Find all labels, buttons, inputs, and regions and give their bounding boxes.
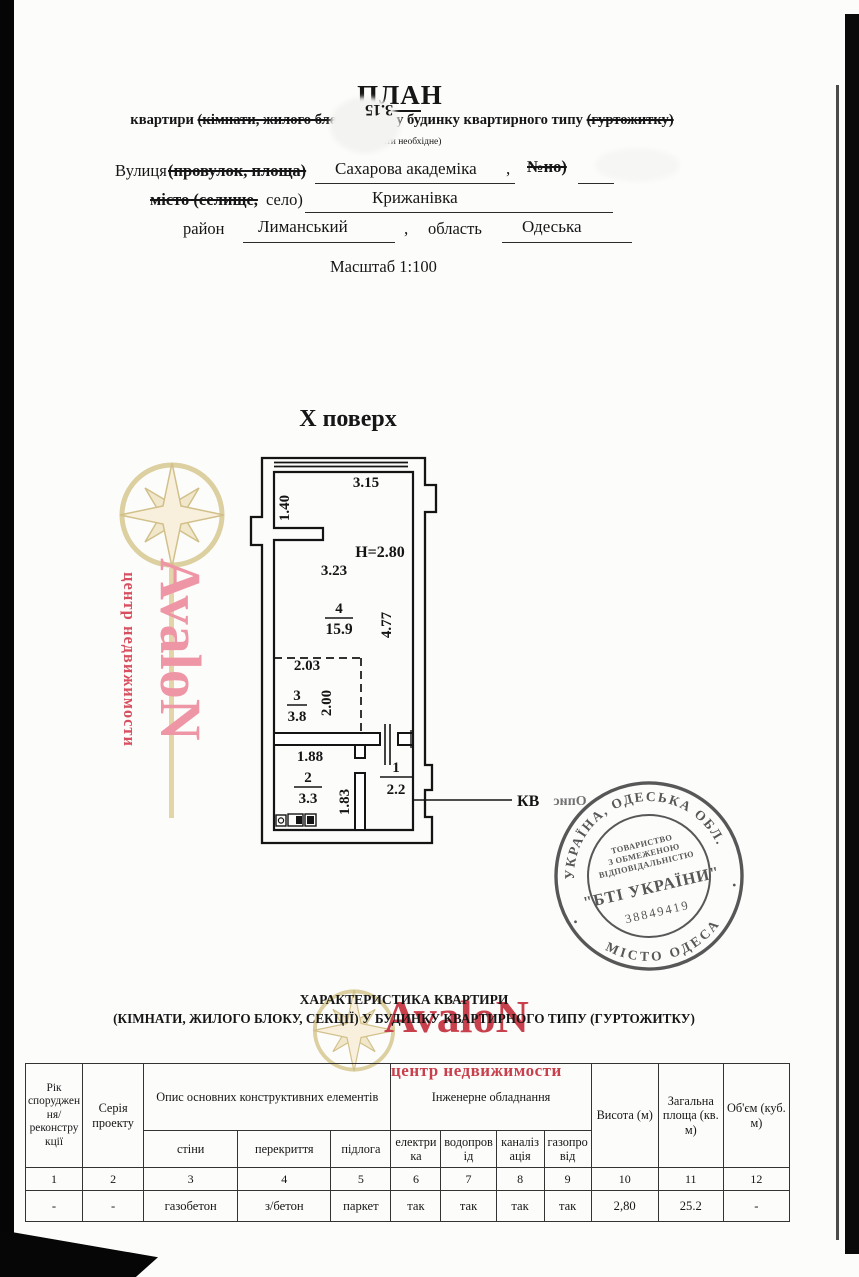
scan-corner-shadow [0, 1230, 158, 1277]
dim-room2-width: 1.88 [297, 749, 323, 765]
value-sewage: так [496, 1191, 544, 1222]
fixture-sink-icon [276, 815, 286, 826]
scan-edge-left [0, 0, 14, 1277]
value-gas: так [544, 1191, 591, 1222]
city-label-struck: місто (селище, [150, 190, 258, 210]
value-slabs: з/бетон [238, 1191, 331, 1222]
col-number: 7 [441, 1168, 496, 1191]
avalon-tagline-watermark: центр недвижимости [119, 572, 139, 817]
room1-number: 1 [392, 760, 400, 776]
col-area-header: Загальна площа (кв. м) [658, 1064, 723, 1168]
subtitle-plain: квартири [130, 112, 197, 128]
city-value: Крижанівка [372, 188, 458, 208]
room1-area: 2.2 [387, 782, 406, 798]
col-floor-header: підлога [331, 1131, 391, 1168]
col-electricity-header: електрика [391, 1131, 441, 1168]
floor-plan-drawing: 3.15 1.40 H=2.80 3.23 4 15.9 4.77 2.03 3… [230, 445, 590, 845]
col-sewage-header: каналізація [496, 1131, 544, 1168]
region-value: Одеська [522, 217, 582, 237]
col-gas-header: газопровід [544, 1131, 591, 1168]
value-height: 2,80 [591, 1191, 658, 1222]
value-area: 25.2 [658, 1191, 723, 1222]
col-walls-header: стіни [144, 1131, 238, 1168]
subtitle-plain-2: у будинку квартирного типу [392, 112, 586, 128]
construction-group-header: Опис основних конструктивних елементів [144, 1064, 391, 1131]
col-water-header: водопровід [441, 1131, 496, 1168]
room2-area: 3.3 [299, 791, 318, 807]
scale-label: Масштаб 1:100 [330, 257, 530, 277]
characteristics-table: Рік спорудження/ реконструкції Серія про… [25, 1063, 790, 1222]
bti-round-stamp: УКРАЇНА, ОДЕСЬКА ОБЛ. МІСТО ОДЕСА • • ТО… [549, 776, 749, 976]
col-series-header: Серія проекту [83, 1064, 144, 1168]
col-number: 11 [658, 1168, 723, 1191]
col-number: 4 [238, 1168, 331, 1191]
street-value: Сахарова академіка [335, 159, 477, 179]
dim-room4-height: 4.77 [379, 611, 395, 638]
scanned-document-page: AvaloN центр недвижимости AvaloN центр н… [0, 0, 859, 1277]
fixture-sink-bowl-icon [278, 818, 283, 823]
col-year-header: Рік спорудження/ реконструкції [26, 1064, 83, 1168]
stamp-code: 38849419 [624, 898, 691, 926]
scan-edge-right-line [836, 85, 839, 1240]
col-number: 5 [331, 1168, 391, 1191]
region-underline [502, 242, 632, 243]
col-number: 8 [496, 1168, 544, 1191]
mid-wall-left [274, 733, 380, 745]
room2-number: 2 [304, 770, 312, 786]
bleed-through-number: 3.15 [356, 100, 402, 118]
dim-room2-height: 1.83 [337, 789, 353, 815]
dim-room3-width: 2.03 [294, 658, 320, 674]
table-heading-line1: ХАРАКТЕРИСТИКА КВАРТИРИ [4, 992, 804, 1008]
col-slabs-header: перекриття [238, 1131, 331, 1168]
dim-top-width: 3.15 [353, 475, 379, 491]
city-label: село) [266, 190, 303, 210]
value-floor: паркет [331, 1191, 391, 1222]
value-water: так [441, 1191, 496, 1222]
partition-wall-lower [355, 773, 365, 830]
value-series: - [83, 1191, 144, 1222]
col-number: 9 [544, 1168, 591, 1191]
avalon-brand-watermark: AvaloN [147, 558, 214, 820]
form-note: (вказати необхідне) [0, 137, 804, 147]
stamp-separator-dot: • [731, 878, 738, 893]
district-value: Лиманський [258, 217, 348, 237]
street-comma: , [506, 159, 510, 179]
col-volume-header: Об'єм (куб. м) [723, 1064, 789, 1168]
street-label: Вулиця [115, 161, 167, 181]
room3-area: 3.8 [288, 709, 307, 725]
kv-label: КВ [517, 793, 540, 810]
value-electricity: так [391, 1191, 441, 1222]
partition-wall-upper [355, 745, 365, 758]
room4-area: 15.9 [325, 621, 352, 638]
room4-number: 4 [335, 601, 343, 617]
district-comma: , [404, 219, 408, 239]
street-underline [315, 183, 515, 184]
document-title-rest: Н [421, 80, 443, 110]
fixture-appliance-detail [296, 816, 302, 824]
document-subtitle: квартири (кімнати, жилого блоку, секці у… [0, 112, 804, 129]
street-label-struck: (провулок, площа) [168, 161, 306, 181]
col-number: 3 [144, 1168, 238, 1191]
room3-number: 3 [293, 688, 301, 704]
number-struck: №но) [527, 157, 567, 177]
subtitle-struck-2: (гуртожитку) [587, 112, 674, 128]
ceiling-height-label: H=2.80 [355, 544, 405, 561]
value-year: - [26, 1191, 83, 1222]
region-label: область [428, 219, 482, 239]
district-label: район [183, 219, 224, 239]
col-number: 2 [83, 1168, 144, 1191]
col-number: 1 [26, 1168, 83, 1191]
value-volume: - [723, 1191, 789, 1222]
number-underline [578, 183, 614, 184]
col-number: 6 [391, 1168, 441, 1191]
dim-room3-height: 2.00 [319, 690, 335, 716]
col-height-header: Висота (м) [591, 1064, 658, 1168]
dim-room4-width: 3.23 [321, 563, 347, 579]
col-number: 12 [723, 1168, 789, 1191]
district-underline [243, 242, 395, 243]
value-walls: газобетон [144, 1191, 238, 1222]
utilities-group-header: Інженерне обладнання [391, 1064, 591, 1131]
fixture-appliance-detail [307, 816, 314, 824]
table-heading-line2: (КІМНАТИ, ЖИЛОГО БЛОКУ, СЕКЦІЇ) У БУДИНК… [4, 1011, 804, 1027]
dim-niche-height: 1.40 [277, 495, 293, 521]
correction-blob-small [595, 148, 680, 182]
city-underline [305, 212, 613, 213]
scan-edge-right-bar [845, 14, 859, 1254]
col-number: 10 [591, 1168, 658, 1191]
floor-label: Х поверх [278, 406, 418, 433]
